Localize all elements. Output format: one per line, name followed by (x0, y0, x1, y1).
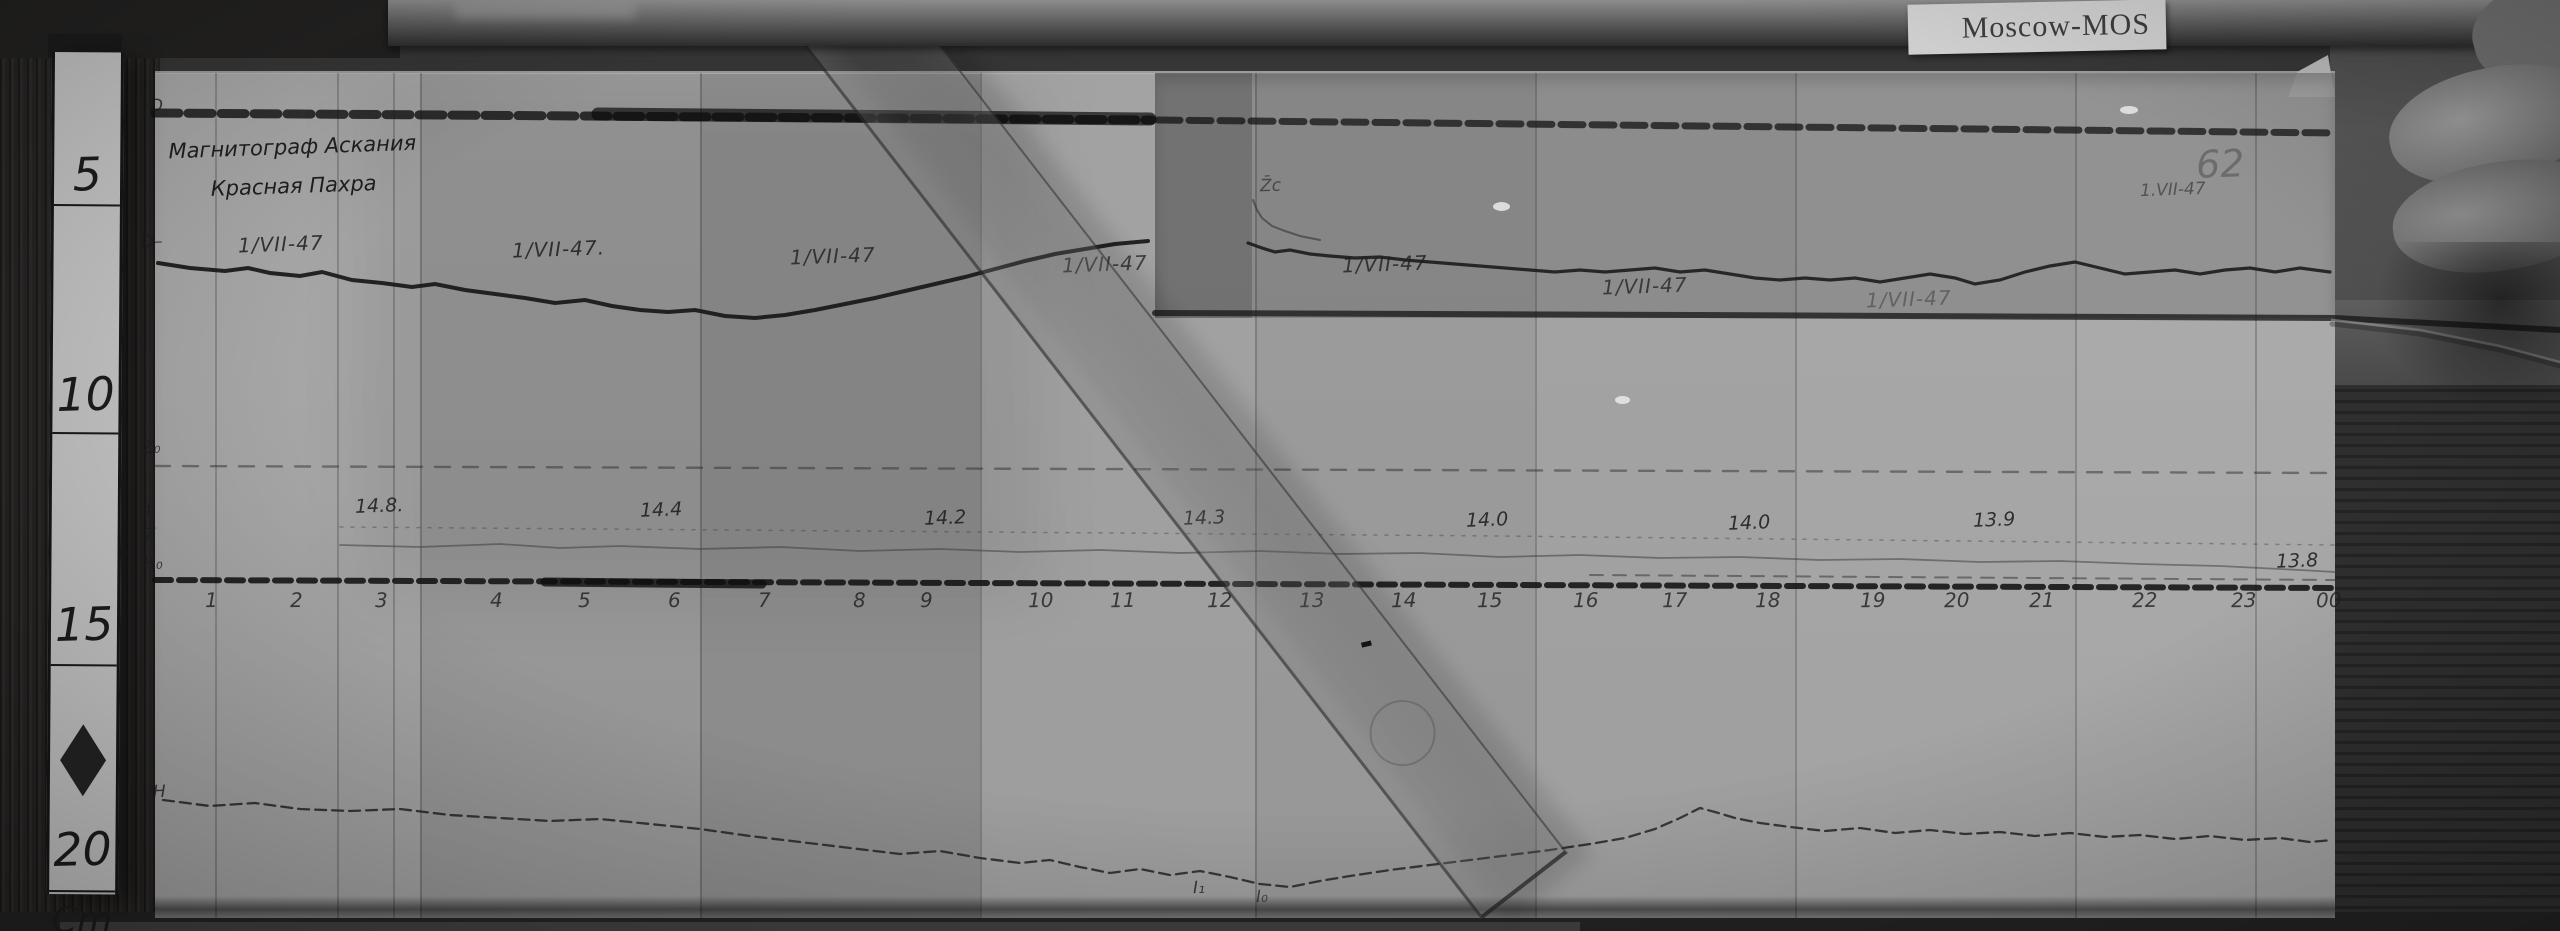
station-header: Магнитограф Аскания Красная Пахра (167, 124, 420, 210)
hour-label: 15 (1477, 588, 1503, 612)
hour-label: 1 (205, 588, 218, 612)
overlay-note: Z̄c (1260, 176, 1282, 197)
hour-label: 10 (1028, 588, 1054, 612)
trace-label: H₀ (143, 554, 163, 575)
cm-ruler-section-line (52, 432, 118, 434)
baseline-value: 14.8. (355, 494, 404, 518)
glass-ruler-fleck (1361, 640, 1372, 647)
hour-label: 20 (1944, 588, 1970, 612)
cm-ruler-unit-label: Cm (49, 900, 115, 931)
hour-label: 16 (1573, 588, 1599, 612)
cm-ruler-section-line (54, 204, 120, 206)
baseline-value: 14.4 (640, 498, 683, 521)
hour-label: 9 (920, 588, 933, 612)
station-label-text: Moscow-MOS (1961, 8, 2150, 46)
baseline-value: 14.0 (1466, 508, 1509, 531)
trace-overlay-band (1158, 120, 2335, 133)
hour-label: 17 (1662, 588, 1688, 612)
date-annotation: 1/VII-47 (790, 243, 876, 270)
trace-label: D (150, 96, 164, 116)
hour-label: 11 (1110, 588, 1136, 612)
date-annotation: 1/VII-47 (1866, 286, 1952, 313)
cm-ruler-number: 10 (52, 366, 119, 422)
hour-label: 5 (578, 588, 591, 612)
hour-label: 4 (490, 588, 503, 612)
trace-h0-thin-right (1590, 575, 2335, 580)
trace-label: Z (144, 525, 156, 545)
baseline-value: 13.9 (1973, 508, 2016, 531)
hour-label: 6 (668, 588, 681, 612)
hour-label: 7 (758, 588, 771, 612)
hour-label: 8 (853, 588, 866, 612)
trace-label: Z₀ (142, 438, 161, 459)
trace-label: D– (141, 232, 163, 253)
hour-label: 3 (375, 588, 388, 612)
hand-shadow (2375, 242, 2560, 412)
trace-squiggle (1253, 200, 1320, 240)
photo-of-magnetogram: Магнитограф Аскания Красная Пахра DD–Z₀t… (0, 0, 2560, 931)
baseline-value: 14.2 (924, 506, 967, 529)
cm-ruler: Cm 5101520 (46, 52, 124, 894)
trace-h-trace (163, 800, 2332, 887)
glass-bar (388, 0, 2560, 46)
hour-label: 00 (2316, 588, 2342, 612)
cm-ruler-diamond (60, 724, 107, 796)
cm-ruler-number: 5 (53, 146, 120, 202)
date-annotation: 1/VII-47. (512, 235, 606, 262)
hour-label: 21 (2029, 588, 2055, 612)
hour-label: 19 (1860, 588, 1886, 612)
glass-bar-highlight (455, 4, 635, 20)
hour-label: 23 (2231, 588, 2257, 612)
cm-ruler-number: 15 (50, 596, 117, 652)
date-annotation: 1/VII-47 (1342, 251, 1428, 278)
sheet-bottom-shadow (155, 896, 2335, 918)
trace-h0-dark (545, 582, 762, 584)
date-annotation: 1/VII-47 (238, 231, 324, 258)
hour-label: 22 (2132, 588, 2158, 612)
cm-ruler-number: 20 (49, 821, 116, 877)
glass-ruler-etched-circle (1356, 687, 1449, 780)
date-annotation: 1/VII-47 (1602, 273, 1688, 300)
baseline-value: 14.0 (1728, 511, 1771, 534)
hour-label: 18 (1755, 588, 1781, 612)
baseline-value: 13.8 (2276, 549, 2319, 572)
station-label-card: Moscow-MOS (1908, 0, 2167, 55)
trace-label: t (146, 500, 153, 520)
hour-label: 2 (290, 588, 303, 612)
corner-note: 1.VII-47 (2140, 179, 2206, 201)
cm-ruler-section-line (51, 664, 117, 666)
cm-ruler-section-line (49, 890, 115, 892)
trace-label: H (153, 782, 166, 802)
